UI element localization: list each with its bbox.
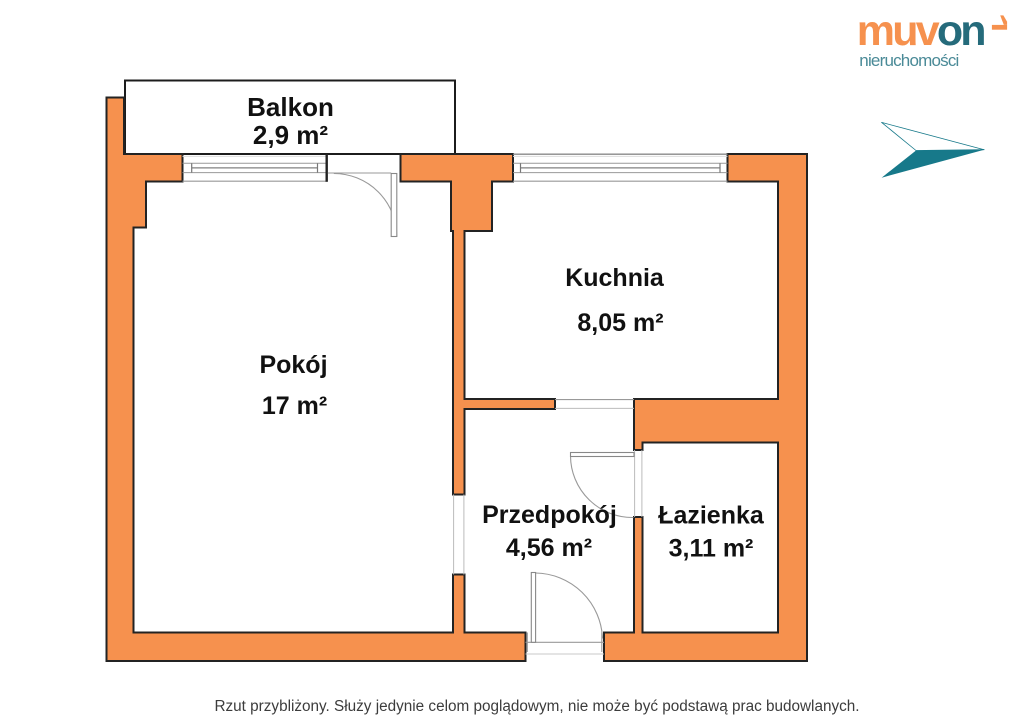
svg-text:Pokój: Pokój bbox=[259, 351, 327, 379]
svg-text:4,56 m²: 4,56 m² bbox=[506, 534, 592, 562]
svg-text:Rzut przybliżony. Służy jedyni: Rzut przybliżony. Służy jedynie celom po… bbox=[214, 698, 859, 715]
svg-text:17 m²: 17 m² bbox=[262, 392, 327, 420]
svg-text:muvon: muvon bbox=[857, 7, 984, 55]
svg-text:Balkon: Balkon bbox=[247, 92, 334, 122]
svg-text:3,11 m²: 3,11 m² bbox=[669, 535, 754, 563]
svg-text:Łazienka: Łazienka bbox=[658, 502, 765, 530]
svg-text:2,9 m²: 2,9 m² bbox=[253, 120, 328, 150]
svg-text:nieruchomości: nieruchomości bbox=[859, 51, 958, 70]
svg-text:Przedpokój: Przedpokój bbox=[482, 501, 617, 529]
svg-text:Kuchnia: Kuchnia bbox=[565, 264, 665, 292]
svg-text:8,05 m²: 8,05 m² bbox=[577, 309, 663, 337]
